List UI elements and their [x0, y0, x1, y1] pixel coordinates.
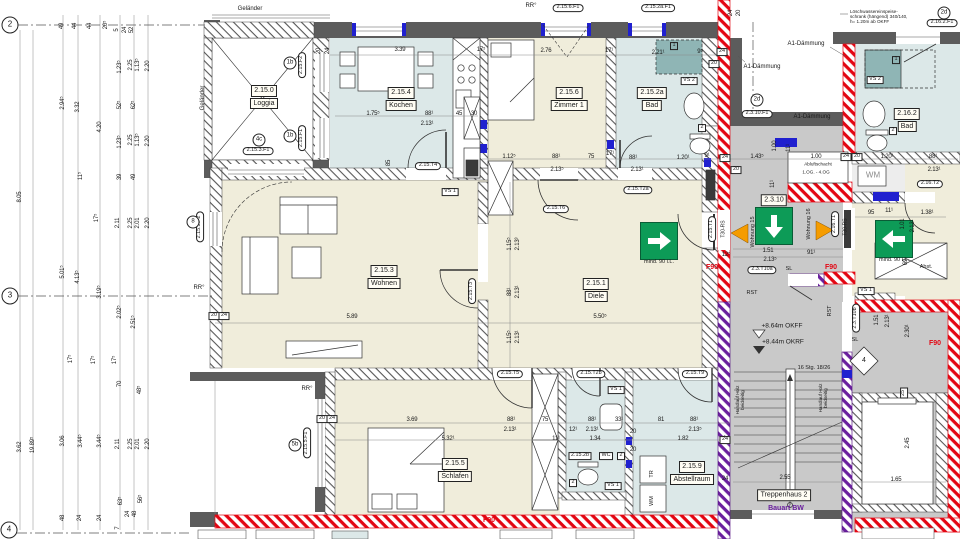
- element-tag: 2.15.F2: [298, 52, 306, 78]
- boxed-tag: 1: [670, 42, 678, 50]
- dimension-label: 2.13⁵: [550, 167, 563, 173]
- boxed-tag: 20: [709, 60, 720, 68]
- dimension-label: 5.89: [347, 314, 358, 320]
- dimension-label: 3.32: [75, 102, 81, 113]
- room-label: 2.15.3Wohnen: [368, 265, 401, 289]
- element-tag: 2.15.T9: [682, 370, 708, 378]
- annotation-label: Bauart BW: [768, 505, 804, 513]
- dimension-label: 1.23⁵: [117, 60, 123, 73]
- annotation-label: mind. 90 i.L.: [644, 260, 674, 266]
- annotation-label: Handlauf Holz beidseitig: [819, 384, 829, 413]
- room-label-line: Treppenhaus 2: [757, 489, 811, 501]
- element-tag: 2.15.T6: [543, 205, 569, 213]
- dimension-label: 1.34: [590, 436, 601, 442]
- annotation-label: T30-RS: [843, 218, 848, 235]
- boxed-tag: 25: [900, 388, 908, 399]
- dimension-label: 24: [77, 515, 83, 521]
- annotation-label: F90: [825, 264, 837, 272]
- dimension-label: 3.39: [395, 47, 406, 53]
- axis-or-ref-tag: 1b: [284, 57, 297, 70]
- dimension-label: 2.01: [135, 218, 141, 229]
- annotation-label: F90: [483, 517, 495, 525]
- dimension-label: 24: [122, 27, 128, 33]
- room-label-line: 2.15.5: [442, 458, 468, 470]
- dimension-label: 20: [736, 10, 742, 16]
- room-label-line: 2.16.2: [894, 108, 920, 120]
- boxed-tag: VS 2: [867, 76, 884, 84]
- dimension-label: 11¹: [552, 436, 560, 442]
- boxed-tag: 24: [720, 436, 731, 444]
- dimension-label: 17¹: [605, 48, 613, 54]
- boxed-tag: 2: [617, 452, 625, 460]
- room-label: 2.15.6Zimmer 1: [551, 87, 588, 111]
- dimension-label: 1.15⁵: [507, 330, 513, 343]
- dimension-label: 88¹: [629, 155, 637, 161]
- element-tag: 2.3.T10a: [747, 266, 776, 274]
- dimension-label: 1.51: [763, 248, 774, 254]
- element-tag: 2.15.T4: [415, 162, 441, 170]
- annotation-label: RR°: [193, 285, 204, 291]
- room-label-line: 2.15.6: [556, 87, 582, 99]
- element-tag: 2.15.2a.F1: [641, 4, 675, 12]
- dimension-label: 8.05: [17, 192, 23, 203]
- dimension-label: 3.62: [17, 442, 23, 453]
- dimension-label: 17⁵: [91, 356, 97, 365]
- dimension-label: 3.06: [60, 436, 66, 447]
- room-label-line: 2.3.10: [761, 194, 787, 206]
- dimension-label: 75: [542, 417, 548, 423]
- dimension-label: 2.02⁵: [117, 305, 123, 318]
- annotation-label: 1.OG. - 4.OG: [802, 171, 829, 176]
- axis-or-ref-tag: 1b: [284, 130, 297, 143]
- annotation-label: +8.64m OKFF: [762, 322, 803, 329]
- dimension-label: 20⁵: [103, 21, 109, 30]
- room-label-line: Wohnen: [368, 278, 401, 290]
- dimension-label: 1.00: [811, 154, 822, 160]
- dimension-label: 49: [131, 174, 137, 180]
- boxed-tag: VS 2: [681, 77, 698, 85]
- room-label-line: 2.15.2a: [637, 87, 667, 99]
- axis-or-ref-tag: 4: [1, 522, 18, 539]
- dimension-label: 95: [868, 210, 874, 216]
- annotation-label: T30-RS: [721, 220, 726, 237]
- dimension-label: 1.13⁵: [135, 133, 141, 146]
- element-tag: 2.15.T3: [468, 278, 476, 304]
- annotation-label: Geländer: [200, 86, 206, 111]
- dimension-label: 33¹: [615, 417, 623, 423]
- dimension-label: 2.11: [115, 439, 121, 449]
- dimension-label: 3.44⁵: [78, 434, 84, 447]
- dimension-label: 2.13⁵: [763, 257, 776, 263]
- room-label-line: Bad: [897, 121, 916, 133]
- axis-or-ref-tag: 2d: [751, 94, 764, 107]
- room-label: 2.15.4Kochen: [386, 87, 417, 111]
- axis-or-ref-tag: 5b: [289, 439, 302, 452]
- dimension-label: 7: [115, 526, 121, 529]
- boxed-tag: 2.15.2b: [569, 452, 592, 460]
- dimension-label: 1.13⁵: [135, 58, 141, 71]
- dimension-label: 2.20: [145, 61, 151, 72]
- dimension-label: 52: [129, 27, 135, 33]
- dimension-label: 11¹: [786, 144, 792, 152]
- dimension-label: 2.45: [905, 438, 911, 449]
- annotation-label: Abluftschacht: [804, 163, 832, 168]
- dimension-label: 3.69: [407, 417, 418, 423]
- element-tag: 2.15.T2b: [576, 370, 605, 378]
- dimension-label: 4.13⁵: [75, 270, 81, 283]
- annotation-label: mind. 90 i.L.: [879, 258, 909, 264]
- dimension-label: 1.15⁵: [507, 237, 513, 250]
- annotation-label: F90: [706, 264, 718, 272]
- dimension-label: 1.65: [891, 477, 902, 483]
- dimension-label: 45: [456, 111, 462, 117]
- dimension-label: 9⁵: [697, 49, 702, 55]
- element-tag: 2.16.2.F1: [927, 19, 958, 27]
- boxed-tag: 20: [852, 153, 863, 161]
- dimension-label: 1.12⁵: [502, 154, 515, 160]
- annotation-label: RR°: [525, 3, 536, 9]
- dimension-label: 3.44⁵: [97, 434, 103, 447]
- dimension-label: 17¹: [606, 151, 614, 157]
- dimension-label: 2.94⁵: [60, 96, 66, 109]
- dimension-label: 11⁵: [78, 172, 84, 180]
- boxed-tag: VS 1: [605, 482, 622, 490]
- room-label-line: 2.15.3: [371, 265, 397, 277]
- dimension-label: 39: [117, 174, 123, 180]
- dimension-label: 1.00: [772, 141, 778, 152]
- dimension-label: 2.13¹: [504, 427, 517, 433]
- dimension-label: 30: [471, 111, 477, 117]
- room-label-line: Zimmer 1: [551, 100, 588, 112]
- room-label-line: 2.15.1: [583, 278, 609, 290]
- boxed-tag: 24: [219, 312, 230, 320]
- annotation-label: SL: [786, 267, 793, 273]
- axis-or-ref-tag: 8: [187, 216, 200, 229]
- dimension-label: 24: [125, 511, 131, 517]
- dimension-label: 5.50⁵: [593, 314, 606, 320]
- dimension-label: 11¹: [770, 180, 776, 188]
- room-label-line: Loggia: [250, 98, 278, 110]
- annotation-label: F90: [929, 340, 941, 348]
- dimension-label: 24: [722, 476, 728, 482]
- annotation-label: WM: [866, 172, 880, 181]
- dimension-label: 88¹: [690, 417, 698, 423]
- boxed-tag: 1: [892, 56, 900, 64]
- dimension-label: 2.01: [135, 439, 141, 450]
- dimension-label: 20: [630, 447, 636, 453]
- dimension-label: 62⁵: [131, 101, 137, 110]
- room-label: 2.15.0Loggia: [250, 85, 278, 109]
- room-label-line: Diele: [585, 291, 608, 303]
- dimension-label: 20: [630, 429, 636, 435]
- dimension-label: 1.01: [900, 219, 906, 230]
- room-label-line: Abstellraum: [670, 474, 714, 486]
- boxed-tag: VS 1: [442, 188, 459, 196]
- axis-or-ref-tag: 4c: [253, 134, 266, 147]
- dimension-label: 88¹: [507, 417, 515, 423]
- element-tag: 2.3.T10b: [852, 303, 860, 332]
- dimension-label: 9¹: [705, 153, 710, 159]
- boxed-tag: 24: [720, 154, 731, 162]
- dimension-label: 70: [117, 381, 123, 387]
- annotation-label: TR: [650, 470, 656, 477]
- dimension-label: 20: [316, 48, 322, 54]
- dimension-label: 24: [97, 515, 103, 521]
- dimension-label: 12¹: [569, 427, 577, 433]
- dimension-label: 91¹: [807, 250, 815, 256]
- dimension-label: 1.75⁵: [366, 111, 379, 117]
- dimension-label: 24: [325, 48, 331, 54]
- boxed-tag: 20: [731, 166, 742, 174]
- text-labels: 3.3917⁵2.7617¹2.21¹9⁵1.75⁵88¹45302.13¹85…: [0, 0, 960, 539]
- boxed-tag: 24: [327, 415, 338, 423]
- floor-plan: 3.3917⁵2.7617¹2.21¹9⁵1.75⁵88¹45302.13¹85…: [0, 0, 960, 539]
- annotation-label: RST: [828, 306, 834, 317]
- dimension-label: 2.20: [145, 439, 151, 450]
- element-tag: 2.15.6.F1: [553, 4, 584, 12]
- dimension-label: 2.25: [128, 135, 134, 146]
- annotation-label: Wohnung 16: [807, 208, 813, 239]
- dimension-label: 2.13¹: [910, 220, 916, 233]
- element-tag: 2.15.T1: [708, 216, 716, 242]
- element-tag: 2.15.T2a: [623, 186, 652, 194]
- dimension-label: 2.13¹: [515, 331, 521, 344]
- axis-or-ref-tag: 2: [2, 17, 19, 34]
- dimension-label: 88¹: [588, 417, 596, 423]
- boxed-tag: 24: [841, 153, 852, 161]
- dimension-label: 2.51⁵: [131, 315, 137, 328]
- dimension-label: 19.89⁵: [30, 437, 36, 453]
- dimension-label: 44: [72, 23, 78, 29]
- dimension-label: 48: [60, 515, 66, 521]
- dimension-label: 17⁵: [112, 356, 118, 365]
- dimension-label: 5.32¹: [442, 436, 455, 442]
- annotation-label: 16 Stg. 18/26: [798, 366, 831, 372]
- dimension-label: 24: [728, 10, 734, 16]
- dimension-label: 44: [87, 23, 93, 29]
- dimension-label: 88¹: [929, 154, 937, 160]
- room-label: 2.15.2aBad: [637, 87, 667, 111]
- dimension-label: 2.25: [128, 439, 134, 450]
- dimension-label: 2.20: [145, 136, 151, 147]
- dimension-label: 88¹: [552, 154, 560, 160]
- dimension-label: 2.13⁵: [688, 427, 701, 433]
- dimension-label: 1.20¹: [677, 155, 690, 161]
- boxed-tag: 2: [698, 124, 706, 132]
- boxed-tag: 24: [717, 48, 728, 56]
- element-tag: 2.15.F1: [298, 125, 306, 151]
- annotation-label: WM: [650, 496, 656, 506]
- dimension-label: 3.19⁵: [97, 285, 103, 298]
- boxed-tag: VS 1: [858, 287, 875, 295]
- annotation-label: Geländer: [238, 6, 263, 12]
- dimension-label: 52⁵: [117, 101, 123, 110]
- dimension-label: 12⁵: [722, 252, 731, 258]
- dimension-label: 1.38¹: [921, 210, 934, 216]
- dimension-label: 2.25: [128, 218, 134, 229]
- room-label-line: 2.15.4: [388, 87, 414, 99]
- dimension-label: 63⁵: [118, 497, 124, 506]
- element-tag: 2.16.T1: [831, 211, 839, 237]
- dimension-label: 85: [386, 160, 392, 166]
- axis-or-ref-tag: 2d: [938, 7, 951, 20]
- annotation-label: Handlauf Holz beidseitig: [736, 386, 746, 415]
- dimension-label: 2.13¹: [586, 427, 599, 433]
- room-label-line: Bad: [642, 100, 661, 112]
- dimension-label: 2.21¹: [652, 50, 665, 56]
- dimension-label: 1.51: [874, 315, 880, 326]
- dimension-label: 88¹: [425, 111, 433, 117]
- dimension-label: 49: [59, 23, 65, 29]
- room-label: 2.15.1Diele: [583, 278, 609, 302]
- element-tag: 2.15.5.F1: [303, 428, 311, 459]
- room-label-line: Kochen: [386, 100, 417, 112]
- dimension-label: 2.13¹: [421, 121, 434, 127]
- annotation-label: Abst.: [920, 265, 933, 271]
- dimension-label: 48⁵: [137, 386, 143, 395]
- element-tag: 2.15.T5: [497, 370, 523, 378]
- axis-or-ref-tag: 3: [2, 288, 19, 305]
- element-tag: 2.15.3.F1: [243, 147, 274, 155]
- dimension-label: 1.20¹: [881, 154, 894, 160]
- dimension-label: 11¹: [885, 208, 893, 214]
- dimension-label: 2.25: [128, 60, 134, 71]
- dimension-label: 2.13¹: [928, 167, 941, 173]
- dimension-label: 17⁵: [68, 355, 74, 364]
- room-label-line: 2.15.9: [679, 461, 705, 473]
- room-label: 2.15.9Abstellraum: [670, 461, 714, 485]
- dimension-label: 2.13¹: [885, 315, 891, 328]
- dimension-label: 1.23⁵: [117, 135, 123, 148]
- room-label-line: Schlafen: [438, 471, 472, 483]
- element-tag: 2.3.10.F1: [742, 110, 773, 118]
- element-tag: 2.16.T2: [917, 180, 943, 188]
- annotation-label: RR°: [301, 386, 312, 392]
- annotation-label: A1-Dämmung: [743, 64, 780, 70]
- dimension-label: 5.01⁵: [60, 265, 66, 278]
- boxed-tag: VS 1: [608, 386, 625, 394]
- room-label: 2.15.5Schlafen: [438, 458, 472, 482]
- dimension-label: 2.13¹: [515, 286, 521, 299]
- dimension-label: 81: [658, 417, 664, 423]
- dimension-label: 2.11: [115, 218, 121, 228]
- dimension-label: 2.13¹: [631, 167, 644, 173]
- boxed-tag: WC: [599, 452, 613, 460]
- dimension-label: 4.20: [97, 122, 103, 133]
- annotation-label: Wohnung 15: [751, 216, 757, 247]
- dimension-label: 56⁵: [138, 495, 144, 504]
- room-label-line: 2.15.0: [251, 85, 277, 97]
- room-label: 2.3.10: [761, 194, 787, 206]
- room-label: Treppenhaus 2: [757, 489, 811, 501]
- dimension-label: 17⁵: [94, 214, 100, 223]
- dimension-label: 75: [588, 154, 594, 160]
- dimension-label: 88¹: [507, 288, 513, 296]
- dimension-label: 2.30¹: [905, 325, 911, 338]
- dimension-label: 17⁵: [477, 47, 486, 53]
- annotation-label: A1-Dämmung: [787, 41, 824, 47]
- dimension-label: 5: [114, 28, 120, 31]
- dimension-label: 1.82: [678, 436, 689, 442]
- dimension-label: 2.20: [145, 218, 151, 229]
- annotation-label: RST: [747, 291, 758, 297]
- annotation-label: +8.44m OKRF: [762, 338, 804, 345]
- dimension-label: 2.13³: [515, 238, 521, 251]
- dimension-label: 1.43⁵: [750, 154, 763, 160]
- dimension-label: 48: [132, 511, 138, 517]
- annotation-label: 4: [862, 357, 866, 365]
- annotation-label: Löschwassereinspeise- schrank (hängend) …: [850, 10, 907, 25]
- dimension-label: 2.76: [541, 48, 552, 54]
- room-label: 2.16.2Bad: [894, 108, 920, 132]
- dimension-label: 2.55: [780, 475, 791, 481]
- annotation-label: A1-Dämmung: [793, 114, 830, 120]
- boxed-tag: 2: [569, 479, 577, 487]
- annotation-label: SL: [852, 338, 859, 344]
